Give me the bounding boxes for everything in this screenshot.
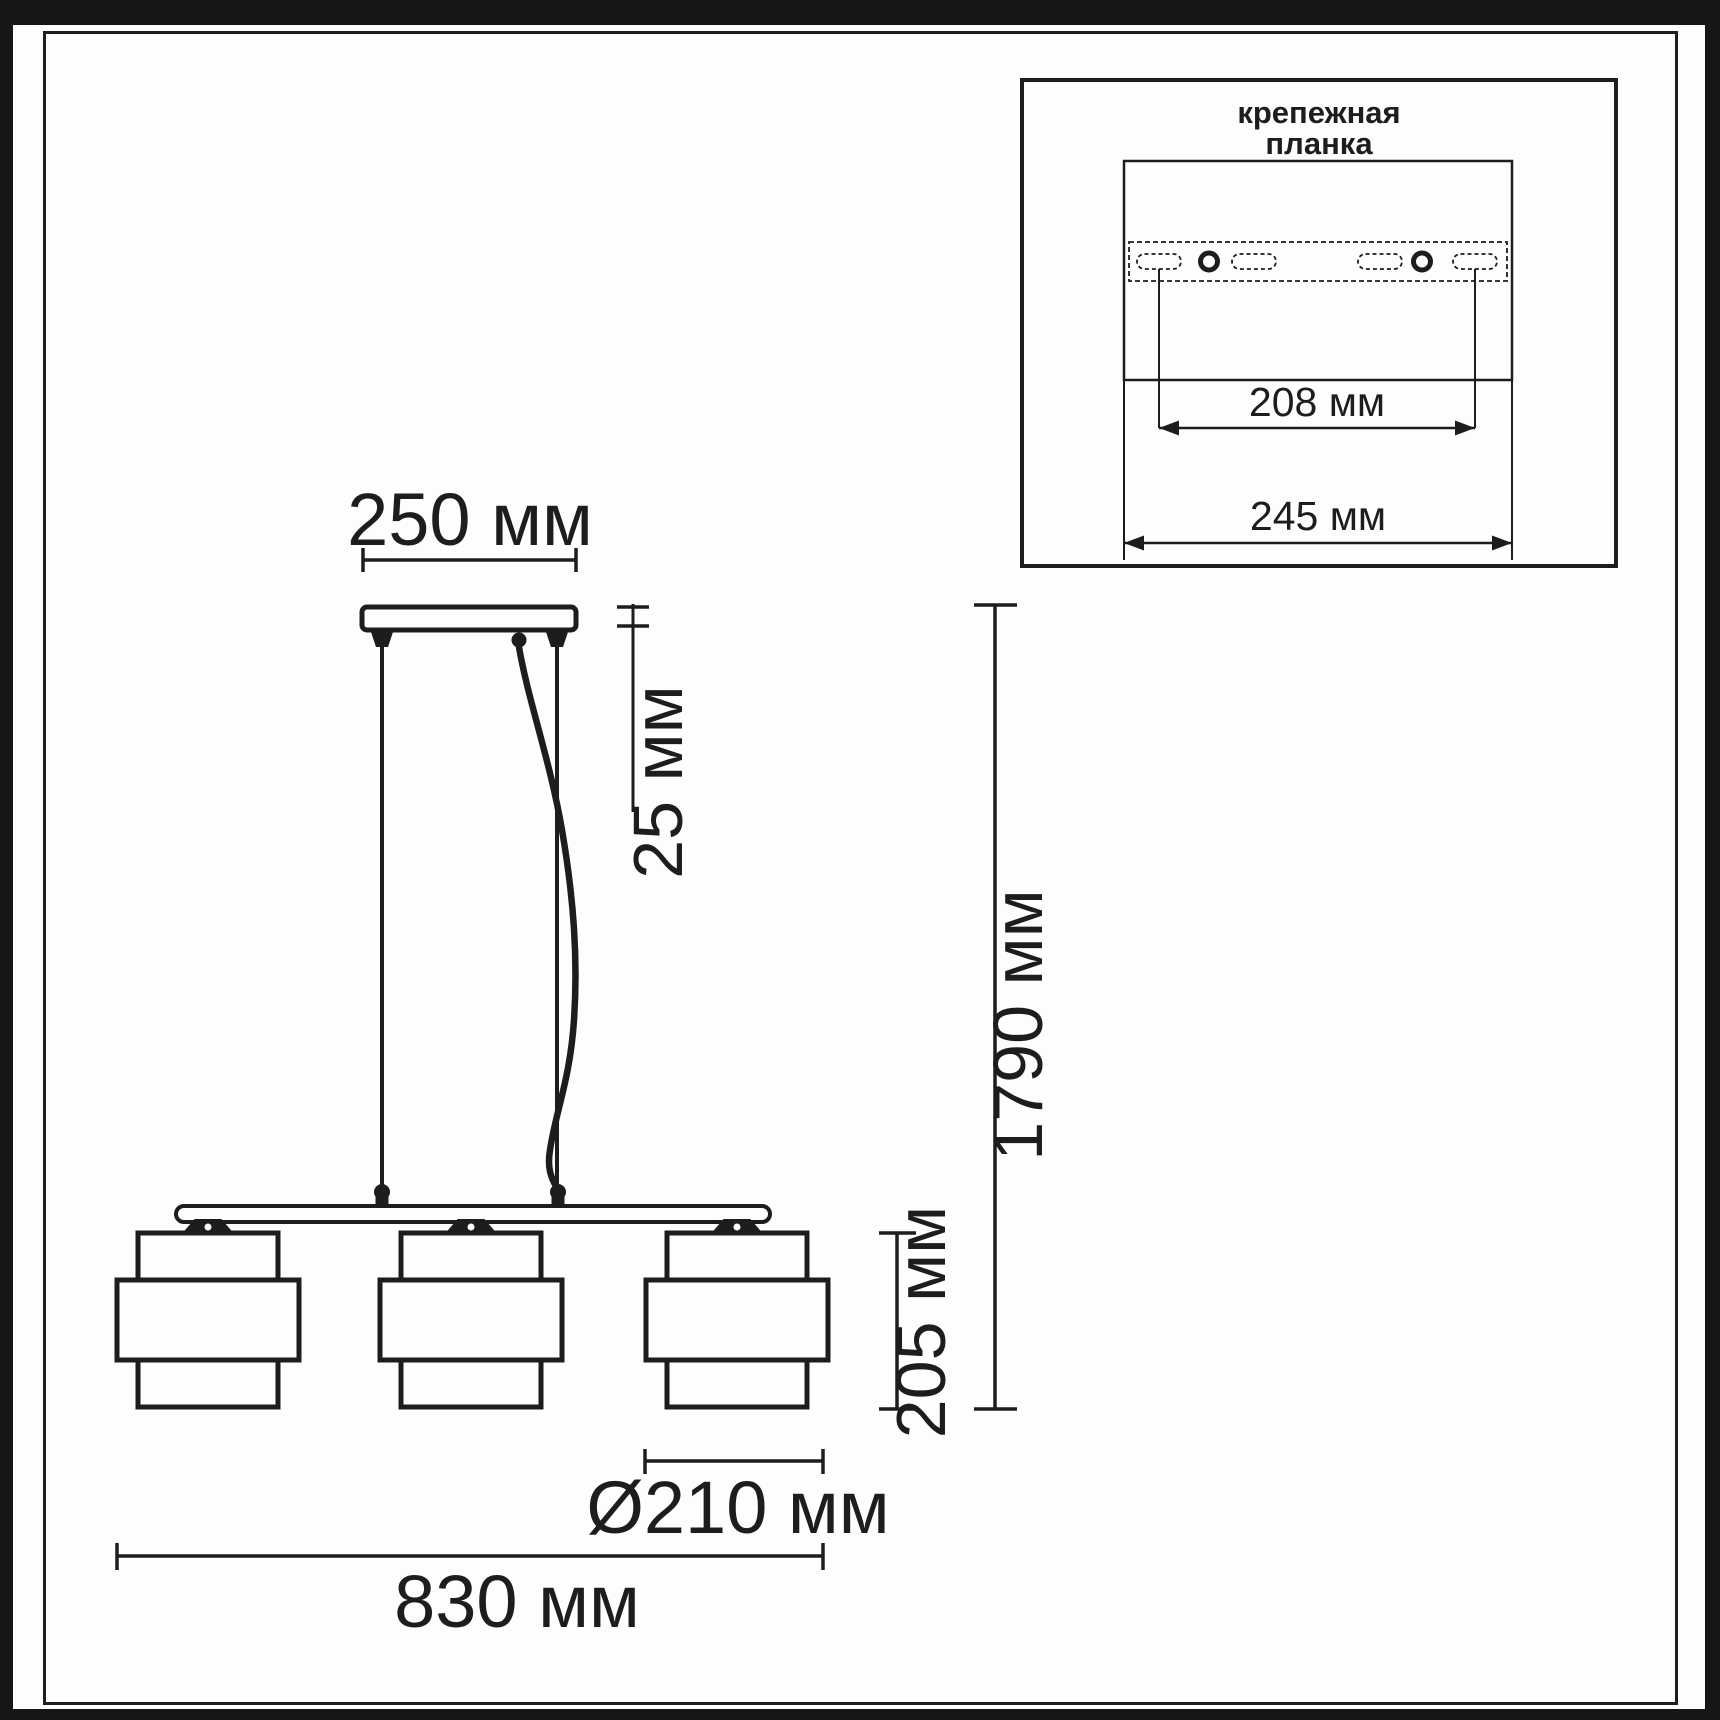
right-rod-ferrule [546,632,568,647]
shade-center-middle-band [380,1280,562,1360]
dim-shade-diameter-label: Ø210 мм [586,1466,889,1549]
shade-left-top-band [138,1233,278,1280]
shade-right-top-band [667,1233,807,1280]
shade-center [380,1220,562,1407]
shade-left-middle-band [117,1280,299,1360]
dim-total-height: 1790 мм [974,604,1057,1409]
shade-center-bottom-band [401,1360,541,1407]
left-rod-ferrule [371,632,393,647]
dim-canopy-height: 25 мм [617,604,697,879]
shade-right [646,1220,828,1407]
power-cable [519,647,576,1188]
shade-right-mount-hole [734,1224,741,1231]
shade-right-middle-band [646,1280,828,1360]
dim-plate-length-label: 245 мм [1250,493,1386,539]
dim-canopy-height-label: 25 мм [619,685,697,879]
inset-title-line1: крепежная [1237,95,1400,130]
inset-title-line2: планка [1265,126,1373,161]
shade-right-bottom-band [667,1360,807,1407]
dim-fixture-length-label: 830 мм [394,1560,640,1643]
dim-shade-height-label: 205 мм [882,1206,960,1439]
shade-left [117,1220,299,1407]
mounting-plate-inset: крепежная планка 208 мм [1022,80,1616,566]
dim-canopy-width-label: 250 мм [347,478,593,561]
dim-fixture-length: 830 мм [117,1543,823,1643]
dim-canopy-width: 250 мм [347,478,593,572]
dim-hole-spacing-label: 208 мм [1249,379,1385,425]
dim-shade-diameter: Ø210 мм [586,1449,889,1549]
dim-total-height-label: 1790 мм [979,889,1057,1160]
shade-center-top-band [401,1233,541,1280]
shade-left-mount-hole [205,1224,212,1231]
ceiling-canopy [362,607,576,630]
pendant-lamp-dimension-diagram: 250 мм 25 мм 1790 мм 205 мм [0,0,1720,1720]
shade-left-bottom-band [138,1360,278,1407]
dim-shade-height: 205 мм [879,1206,960,1439]
technical-drawing-sheet: 250 мм 25 мм 1790 мм 205 мм [0,0,1720,1720]
shade-center-mount-hole [468,1224,475,1231]
